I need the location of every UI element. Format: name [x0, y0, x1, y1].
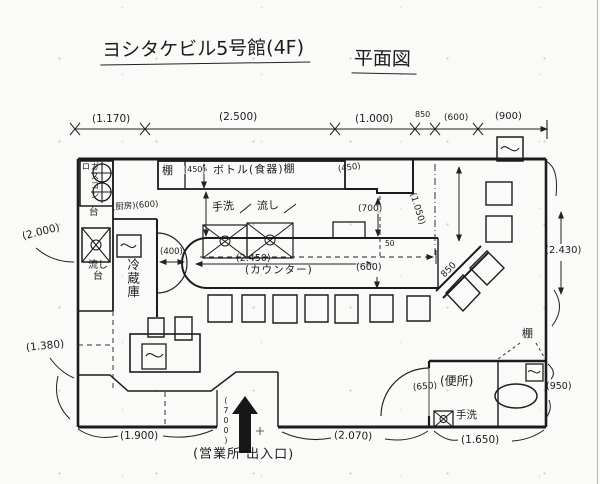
table-wave-icon: [146, 354, 163, 357]
dim-shelf-450: (450): [184, 166, 206, 174]
toilet-bowl: [495, 384, 537, 408]
toilet-wave-icon: [528, 371, 540, 373]
toilet-shelf-leaders: [498, 343, 544, 359]
counter-step-box: [333, 222, 365, 238]
label-toilet-handwash: 手洗: [456, 410, 477, 421]
label-toilet-shelf: 棚: [522, 328, 533, 340]
fridge-wave-icon: [121, 244, 136, 248]
title-suffix: 平面図: [352, 47, 417, 74]
toilet-handwash-box: [434, 411, 453, 427]
entrance-arrow-icon: [232, 396, 258, 453]
dim-bottom-1650: (1.650): [461, 435, 499, 446]
diamond-table-2: [470, 251, 504, 285]
dim-counter-2450: (2.450): [236, 254, 271, 264]
ac-wave-icon: [501, 147, 519, 151]
dim-top-1170: (1.170): [92, 114, 130, 125]
label-sink-unit: 流し 台: [85, 261, 111, 282]
label-gas-stove: ガスコンロ: [80, 162, 98, 208]
dim-right-2430: (2.430): [545, 246, 581, 257]
label-toilet: (便所): [440, 375, 473, 388]
dim-entrance-700: (700): [221, 396, 229, 446]
dim-top-1000: (1.000): [355, 114, 393, 125]
vestibule-bench-line: [78, 372, 278, 391]
floorplan-canvas: ヨシタケビル5号館(4F) 平面図 (1.170) (2.500) (1.000…: [0, 0, 600, 484]
right-table-1: [486, 182, 512, 205]
table-wave-box: [142, 344, 166, 369]
label-bottle-shelf: ボトル(食器)棚: [213, 163, 296, 176]
diamond-table-1: [446, 275, 480, 311]
right-table-2: [486, 216, 512, 242]
dim-top-900: (900): [495, 112, 522, 123]
dim-bottom-2070: (2.070): [334, 430, 373, 442]
kitchen-sink-x-icon: [82, 228, 110, 262]
dim-door-400: (400): [160, 248, 183, 257]
label-refrigerator: 冷蔵庫: [126, 258, 139, 312]
scan-edge-line: [597, 0, 599, 484]
floorplan-drawing: [0, 0, 600, 484]
dim-top-600: (600): [444, 114, 468, 123]
label-shelf: 棚: [162, 165, 173, 177]
page-title: ヨシタケビル5号館(4F): [100, 19, 310, 62]
title-main: ヨシタケビル5号館(4F): [100, 36, 310, 65]
label-counter-handwash: 手洗: [212, 200, 235, 213]
dim-right-950: (950): [546, 382, 572, 392]
dim-700-interior: (700): [358, 205, 382, 214]
label-entrance: (営業所 出入口): [193, 448, 294, 463]
label-stove-stand: 台: [89, 208, 99, 218]
toilet-handwash-x-icon: [434, 411, 453, 427]
dim-gap-50: 50: [385, 240, 395, 248]
label-counter-sink: 流し: [257, 199, 280, 212]
page-title-suffix: 平面図: [352, 29, 418, 70]
label-counter: (カウンター): [245, 265, 313, 276]
dim-top-2500: (2.500): [219, 112, 257, 123]
entrance-plus-mark: [256, 427, 264, 435]
side-leader-curves: [36, 161, 560, 419]
dim-top-850: 850: [415, 111, 430, 119]
dim-counter-600: (600): [356, 263, 382, 273]
dim-bottom-1900: (1.900): [120, 431, 158, 442]
